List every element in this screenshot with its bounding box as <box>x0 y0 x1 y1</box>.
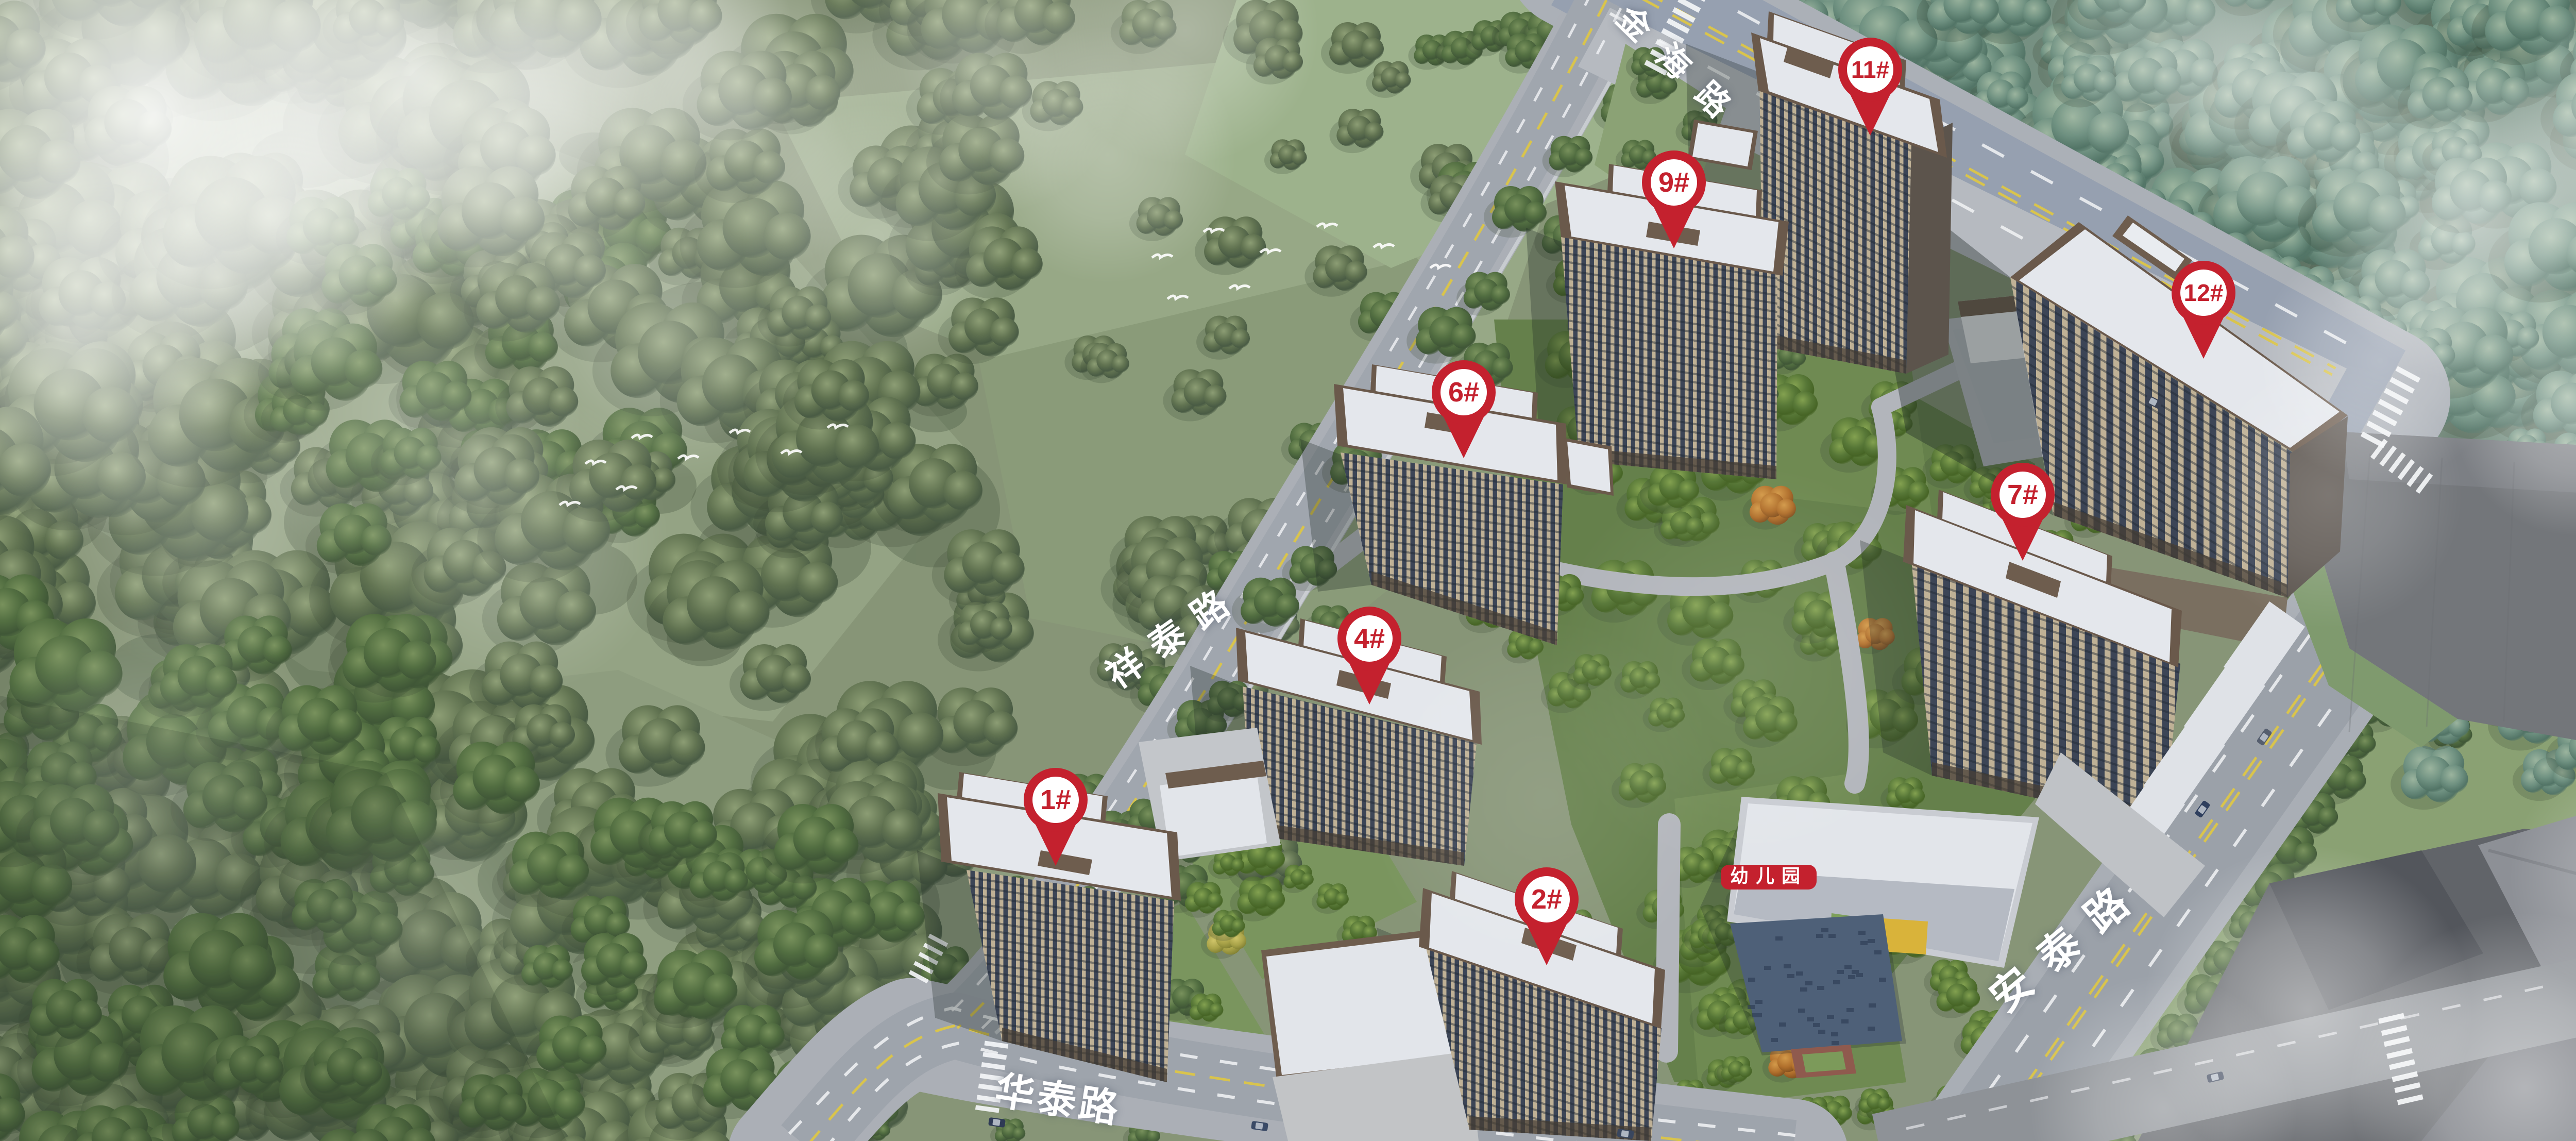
svg-text:11#: 11# <box>1851 56 1889 83</box>
svg-text:1#: 1# <box>1040 784 1071 815</box>
svg-text:6#: 6# <box>1448 377 1479 408</box>
svg-text:12#: 12# <box>2184 279 2224 306</box>
svg-text:7#: 7# <box>2007 479 2038 510</box>
svg-text:4#: 4# <box>1354 623 1385 654</box>
svg-text:2#: 2# <box>1531 884 1562 915</box>
svg-text:9#: 9# <box>1658 167 1689 198</box>
svg-text:幼儿园: 幼儿园 <box>1730 865 1807 886</box>
